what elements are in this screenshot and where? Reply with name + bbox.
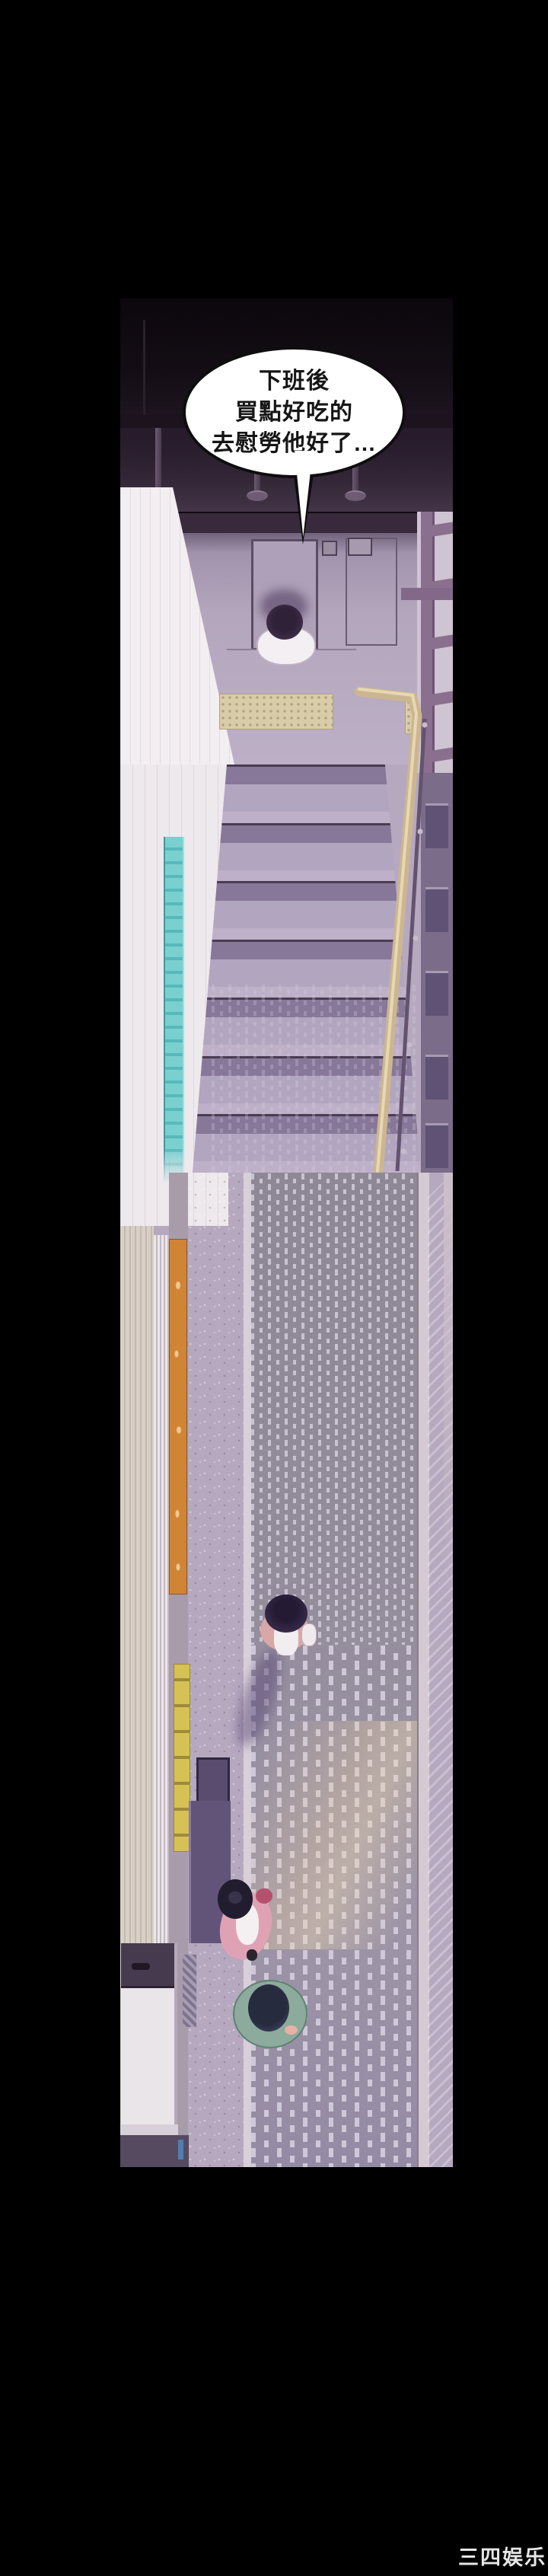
man-hair <box>248 1984 289 2032</box>
curb-right <box>417 1173 429 2167</box>
woman1-bag <box>301 1623 317 1646</box>
woman2-bag <box>256 1888 272 1904</box>
striped-awning-edge <box>183 1955 196 2027</box>
speech-bubble: 下班後 買點好吃的 去慰勞他好了… <box>183 346 406 478</box>
speech-line-2: 買點好吃的 <box>235 397 353 428</box>
sunlight-flare <box>251 1721 417 1949</box>
orange-banner <box>169 1239 187 1594</box>
speech-line-1: 下班後 <box>259 365 330 397</box>
comic-page: 下班後 買點好吃的 去慰勞他好了… 三四娱乐 <box>0 0 548 2576</box>
speech-line-3: 去慰勞他好了… <box>212 428 377 459</box>
right-wall-edge <box>444 1173 453 1599</box>
blue-sign-sliver <box>178 2140 183 2159</box>
woman1-hair <box>265 1594 307 1633</box>
man-hand <box>285 2025 298 2035</box>
site-watermark: 三四娱乐 <box>451 2541 546 2571</box>
woman2-hair-bun <box>228 1891 242 1904</box>
kiosk-slot <box>132 1963 150 1970</box>
crosswalk-pattern-upper <box>251 1173 417 1645</box>
kiosk-base-bar <box>120 2124 178 2135</box>
comic-panel: 下班後 買點好吃的 去慰勞他好了… <box>120 298 453 2167</box>
woman2-shoe <box>247 1949 257 1961</box>
yellow-banner <box>174 1664 190 1852</box>
